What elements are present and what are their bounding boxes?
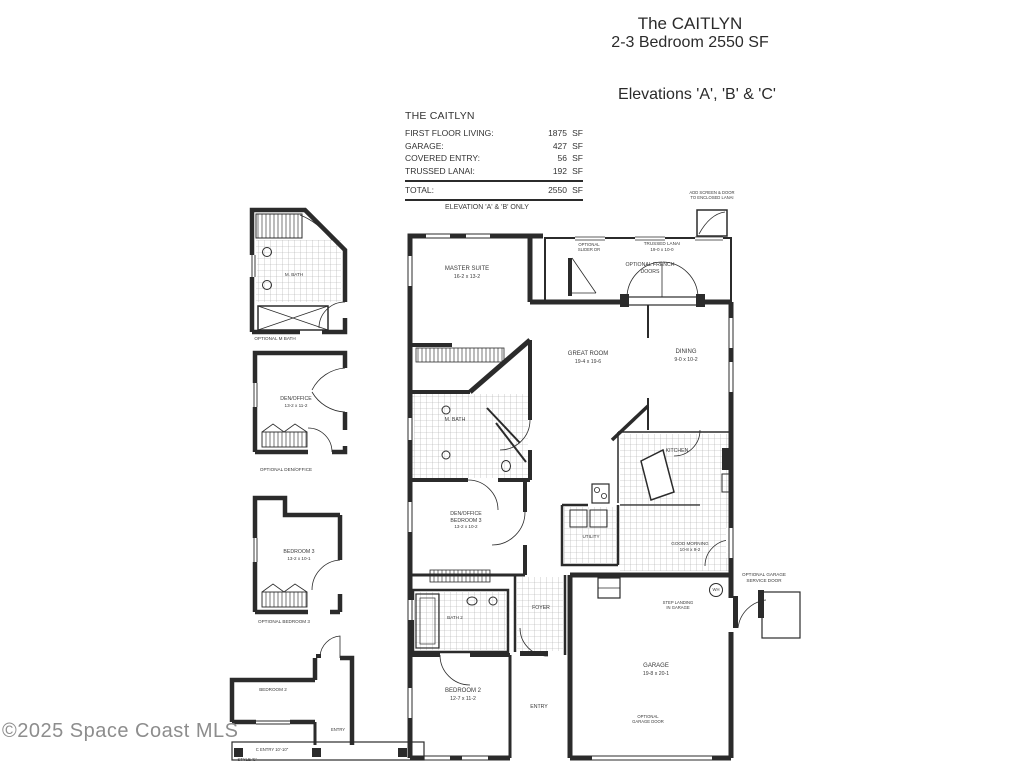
foyer-label: FOYER [532,605,550,612]
inset-bedroom-3-label: BEDROOM 3 13-2 x 10-1 [283,549,314,561]
french-doors-label: OPTIONAL FRENCH DOORS [625,262,674,275]
inset-den-office-caption: OPTIONAL DEN/OFFICE [260,467,312,473]
screen-door-structure [697,210,727,236]
area-row: COVERED ENTRY: 56 SF [405,152,583,165]
elevation-note: ELEVATION 'A' & 'B' ONLY [445,204,529,213]
optional-slider-label: OPTIONAL SLIDER DR [578,242,600,253]
area-row-unit: SF [567,127,583,140]
optional-slider-door [568,258,596,296]
step-landing-note: STEP LANDING IN GARAGE [663,600,694,611]
area-total-unit: SF [567,184,583,197]
good-morning-label: GOOD MORNING 10-8 x 9-2 [671,541,709,552]
area-row-label: GARAGE: [405,140,537,153]
inset-m-bath-inner-label: M. BATH [285,272,303,278]
plan-title: The CAITLYN [638,14,743,34]
area-summary-table: THE CAITLYN FIRST FLOOR LIVING: 1875 SF … [405,110,583,201]
great-room-label: GREAT ROOM 19-4 x 19-6 [568,351,608,365]
optional-garage-door-note: OPTIONAL GARAGE DOOR [632,714,664,725]
trussed-lanai-label: TRUSSED LANAI 19-0 x 10-0 [644,241,681,252]
entry-label: ENTRY [530,704,548,711]
area-row-value: 56 [537,152,567,165]
inset-style-c-entry-label: ENTRY [331,727,345,732]
area-row-value: 1875 [537,127,567,140]
inset-den-office-label: DEN/OFFICE 13-2 x 11-2 [280,396,311,408]
inset-bedroom-3-caption: OPTIONAL BEDROOM 3 [258,619,310,625]
inset-optional-m-bath [249,210,345,332]
area-row: GARAGE: 427 SF [405,140,583,153]
area-row-unit: SF [567,165,583,178]
area-row-label: COVERED ENTRY: [405,152,537,165]
area-row: FIRST FLOOR LIVING: 1875 SF [405,127,583,140]
area-row-value: 427 [537,140,567,153]
garage-label: GARAGE 19-8 x 20-1 [643,663,669,677]
m-bath-label: M. BATH [445,417,466,424]
inset-style-c-style-label: STYLE 'C' [237,757,256,762]
mls-watermark: ©2025 Space Coast MLS [2,720,238,743]
utility-label: UTILITY [582,534,599,540]
area-total-row: TOTAL: 2550 SF [405,180,583,201]
service-door-note: OPTIONAL GARAGE SERVICE DOOR [742,572,786,583]
area-total-value: 2550 [537,184,567,197]
garage-service-door [733,590,800,638]
bath-2-label: BATH 2 [447,615,463,621]
area-row-label: FIRST FLOOR LIVING: [405,127,537,140]
main-plan-linework [405,210,800,763]
inset-m-bath-caption: OPTIONAL M BATH [254,336,295,342]
area-total-label: TOTAL: [405,184,537,197]
plan-subtitle: 2-3 Bedroom 2550 SF [611,34,768,52]
area-row-unit: SF [567,152,583,165]
area-row: TRUSSED LANAI: 192 SF [405,165,583,178]
inset-style-c-entry [232,636,424,760]
kitchen-label: KITCHEN [666,448,689,455]
inset-style-c-bedroom-label: BEDROOM 2 [259,687,287,693]
screen-door-note: ADD SCREEN & DOOR TO ENCLOSED LANAI [689,190,734,201]
water-heater-label: WH [713,587,720,592]
bedroom-2-label: BEDROOM 2 12-7 x 11-2 [445,688,481,702]
den-office-label: DEN/OFFICE BEDROOM 3 13-2 x 10-2 [450,511,481,530]
area-row-unit: SF [567,140,583,153]
inset-style-c-dim-label: C ENTRY 10'-10" [256,747,288,752]
floorplan-sheet: The CAITLYN 2-3 Bedroom 2550 SF Elevatio… [0,0,1024,768]
elevations-line: Elevations 'A', 'B' & 'C' [618,86,776,104]
dining-label: DINING 9-0 x 10-2 [674,349,697,363]
master-suite-label: MASTER SUITE 16-2 x 13-2 [445,266,489,280]
area-row-value: 192 [537,165,567,178]
area-row-label: TRUSSED LANAI: [405,165,537,178]
area-table-title: THE CAITLYN [405,110,583,122]
